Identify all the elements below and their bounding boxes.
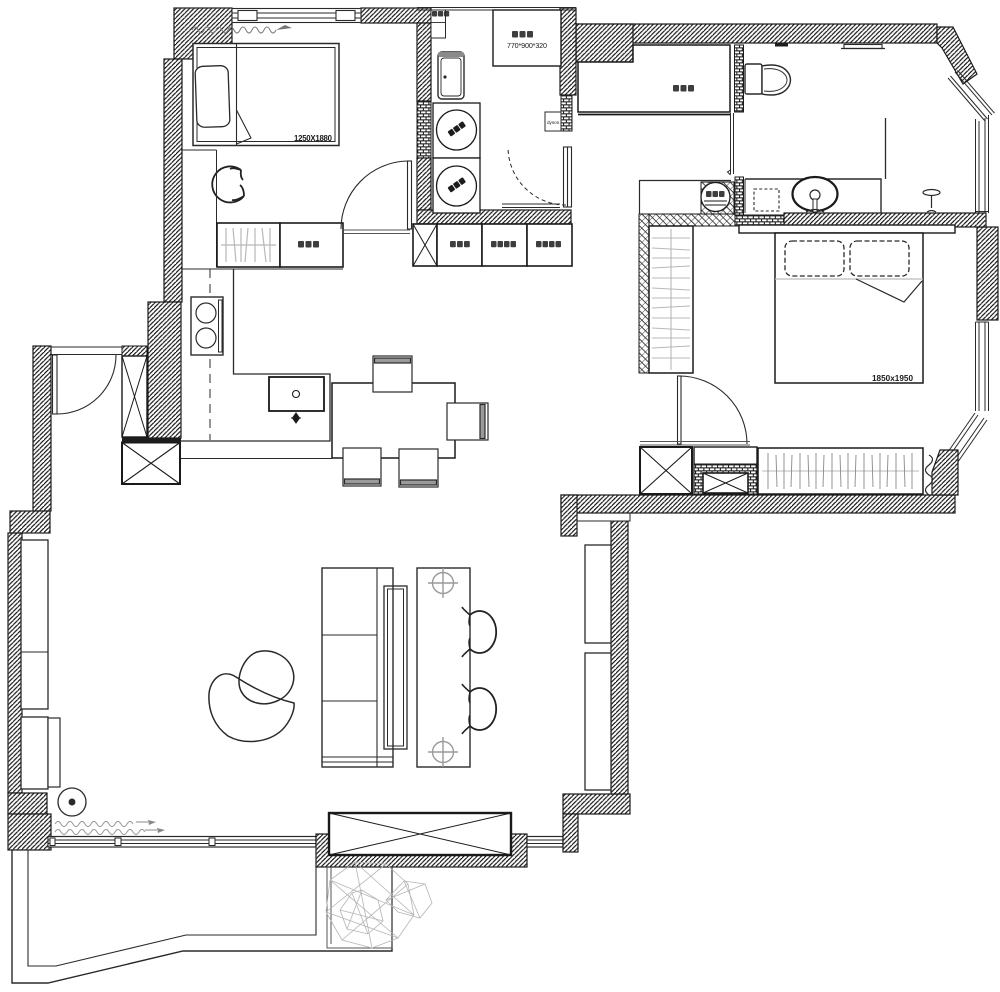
svg-text:1850x1950: 1850x1950 xyxy=(872,374,913,383)
svg-text:dyson: dyson xyxy=(547,120,560,125)
svg-text:1250X1880: 1250X1880 xyxy=(294,134,333,143)
svg-text:770*900*320: 770*900*320 xyxy=(507,41,547,50)
